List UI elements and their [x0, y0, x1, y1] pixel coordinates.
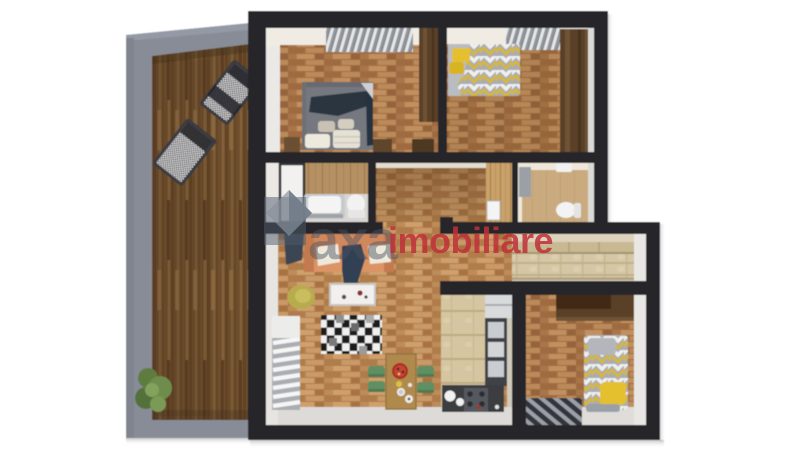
svg-text:axa: axa: [308, 208, 398, 271]
svg-text:imobiliare: imobiliare: [388, 220, 553, 261]
